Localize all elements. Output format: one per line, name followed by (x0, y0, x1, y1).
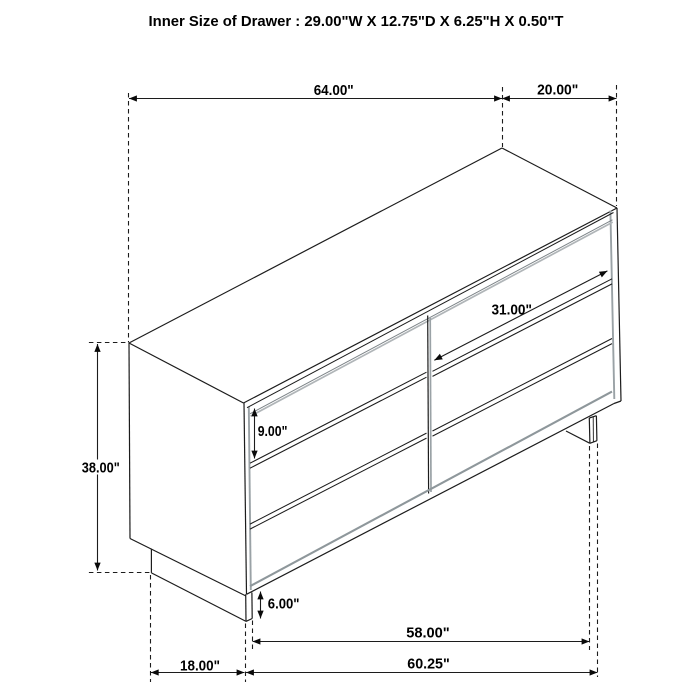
svg-text:9.00": 9.00" (258, 423, 288, 440)
svg-text:38.00": 38.00" (82, 460, 120, 477)
svg-text:18.00": 18.00" (180, 658, 220, 675)
svg-text:31.00": 31.00" (491, 302, 532, 319)
svg-text:64.00": 64.00" (314, 82, 354, 99)
svg-text:Inner Size of Drawer : 29.00"W: Inner Size of Drawer : 29.00"W X 12.75"D… (149, 13, 565, 30)
svg-text:58.00": 58.00" (406, 625, 450, 642)
svg-text:6.00": 6.00" (268, 595, 300, 612)
svg-text:20.00": 20.00" (537, 82, 578, 99)
svg-text:60.25": 60.25" (407, 656, 450, 673)
